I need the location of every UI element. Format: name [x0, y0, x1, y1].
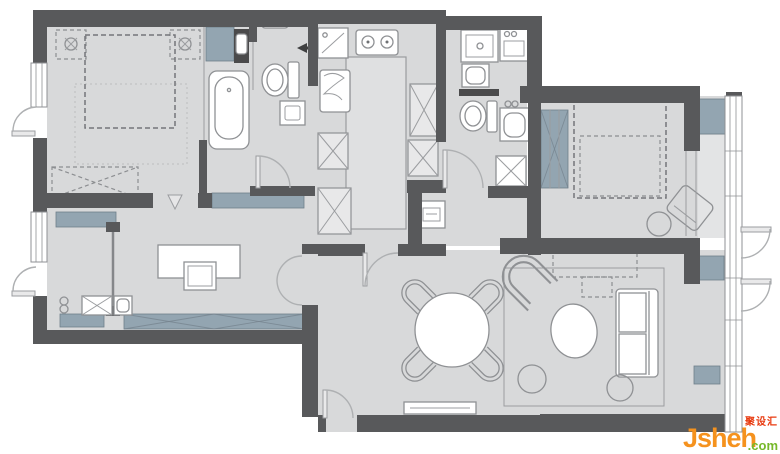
structural-column [496, 156, 526, 186]
balcony-exterior-door [741, 227, 771, 258]
kitchen-cabinet [318, 133, 348, 169]
basin-icon [236, 34, 247, 54]
balcony-door [12, 107, 36, 136]
window [31, 63, 47, 107]
fridge-icon [320, 70, 350, 112]
dining-table [415, 293, 489, 367]
toilet-icon [262, 62, 299, 98]
window [31, 212, 47, 262]
watermark-tld: .com [748, 439, 778, 452]
utility-cabinet [82, 296, 132, 315]
washbasin-icon [462, 64, 489, 87]
tall-cabinet [410, 84, 438, 136]
entry-bench [60, 314, 104, 327]
kitchen-island [346, 57, 406, 229]
tv-cabinet [404, 402, 476, 414]
floor-plan-drawing [0, 0, 780, 454]
living-corner-cabinet-2 [694, 366, 720, 384]
balcony-exterior-door [741, 279, 771, 311]
washer-icon [280, 101, 305, 125]
cooktop-icon [356, 30, 398, 55]
study-window-bench [124, 314, 304, 329]
watermark-logo: 聚设汇 Jsheh .com [683, 420, 778, 452]
window-band-east [725, 96, 742, 432]
kitchen-cabinet [318, 188, 351, 234]
tall-cabinet [408, 140, 438, 176]
floor-master-suite [47, 27, 315, 194]
bedroom2-corner-cabinet [698, 99, 725, 134]
living-corner-cabinet [698, 256, 724, 280]
bath2-shelf [500, 28, 528, 61]
toilet-icon [460, 101, 497, 132]
shower-icon [461, 30, 498, 62]
watermark-brand: Jsheh [683, 425, 756, 452]
sofa [616, 289, 658, 377]
kitchen-sink-icon [318, 28, 348, 58]
hallway [419, 201, 445, 228]
floor-plan: 聚设汇 Jsheh .com [0, 0, 780, 454]
entry-door [12, 267, 36, 296]
bath1-closet [206, 27, 234, 61]
